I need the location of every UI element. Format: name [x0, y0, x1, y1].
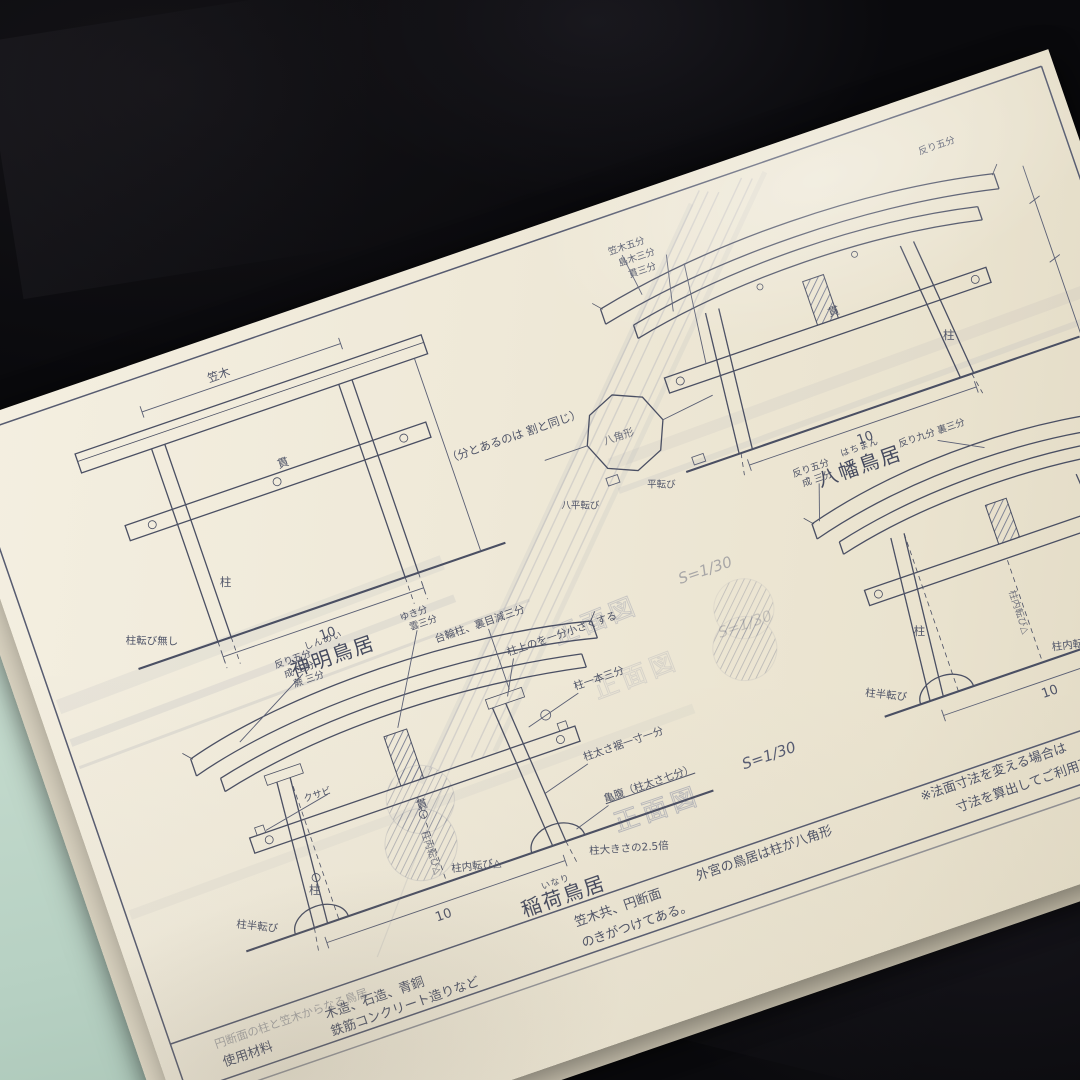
octagon-left-note: 八平転び — [561, 501, 600, 512]
span-dimension: 10 — [1040, 682, 1061, 702]
scale-note: S=1/30 — [676, 553, 735, 588]
base-note: 柱大きさの2.5倍 — [589, 839, 670, 858]
inari-torii-drawing: 反り五分 成 三分 蕨 三分 ゆき分 雲三分 台輪柱、裏目減三分 柱上のを一分小… — [155, 535, 734, 1012]
band-geku-note: 外宮の鳥居は柱が八角形 — [694, 823, 834, 885]
right-torii-drawing: 反り五分 成 三分 反り九分 裏三分 柱上のを一分小さくする 柱 柱半転び 柱内… — [786, 332, 1080, 756]
bun-note: （分とあるのは 割と同じ） — [445, 406, 583, 465]
view-stamps: 正面図 S=1/30 正面図 S=1/30 正面図 S=1/30 — [543, 546, 823, 838]
photo-scene: 正面図 S=1/30 正面図 S=1/30 正面図 S=1/30 — [0, 0, 1080, 1080]
inner-lean-vertical: 柱内転び△ — [1006, 589, 1032, 636]
no-lean-note: 柱転び無し — [126, 634, 179, 648]
hashira-label: 柱 — [914, 624, 926, 638]
kusabi-label: クサビ — [302, 785, 333, 805]
inner-lean-note: 柱内転び△ — [1051, 634, 1080, 653]
sori-kubu-dim: 反り九分 裏三分 — [897, 416, 967, 450]
scale-note-2: S=1/30 — [740, 738, 799, 773]
hashira-label: 柱 — [943, 328, 955, 342]
sori-dim: 反り五分 — [917, 135, 957, 158]
octagon-right-note: 平転び — [647, 480, 676, 491]
hashira-label: 柱 — [309, 883, 321, 897]
octagon-label: 八角形 — [602, 426, 636, 448]
hashira-label: 柱 — [220, 575, 232, 589]
span-dimension: 10 — [433, 906, 454, 926]
half-lean-note: 柱半転び — [236, 917, 280, 934]
half-lean-note: 柱半転び — [865, 686, 909, 703]
